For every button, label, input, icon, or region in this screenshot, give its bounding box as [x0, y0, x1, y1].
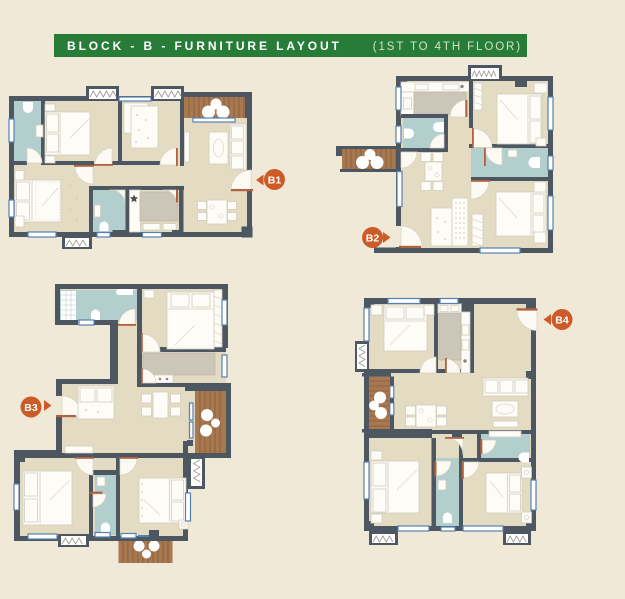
svg-text:B3: B3	[24, 402, 38, 414]
svg-text:B4: B4	[555, 315, 569, 327]
svg-text:B2: B2	[366, 233, 380, 245]
svg-text:B1: B1	[268, 175, 282, 187]
